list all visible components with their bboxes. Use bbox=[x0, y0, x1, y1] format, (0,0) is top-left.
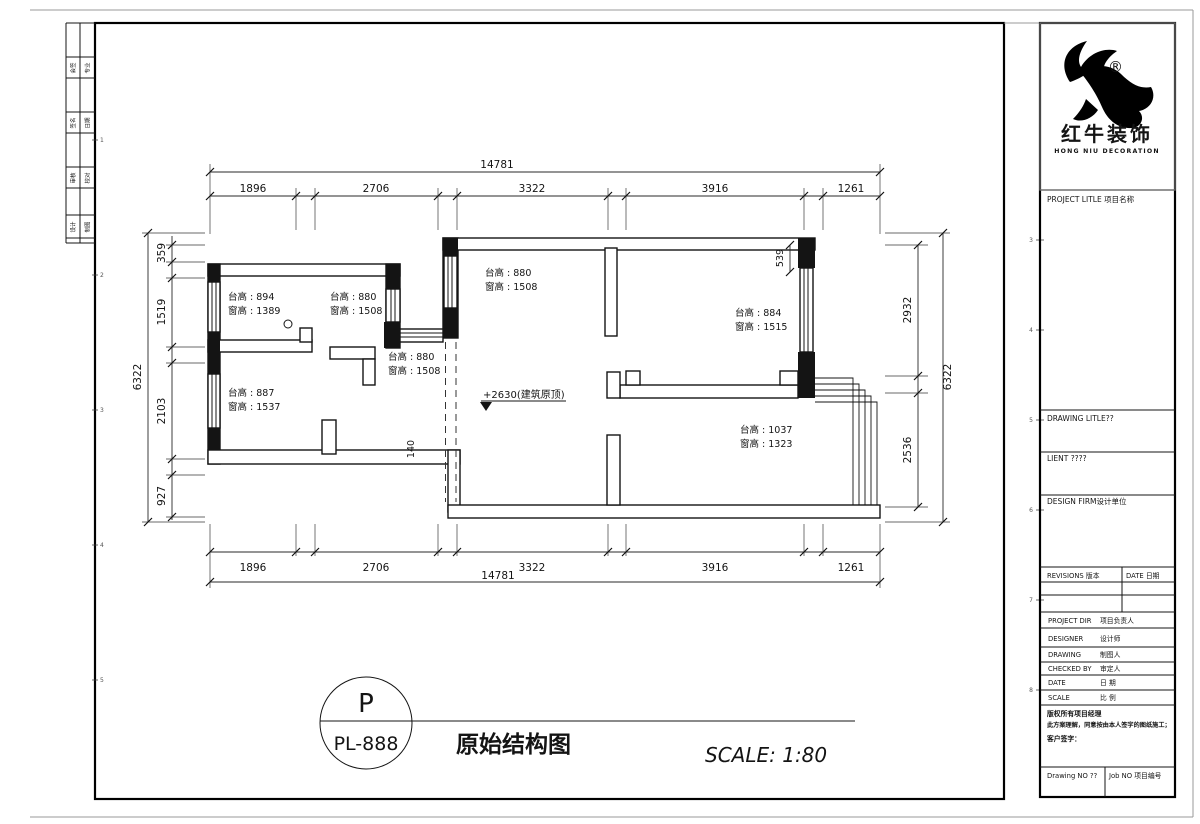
dimensions-right: 6322 2932 2536 bbox=[885, 229, 954, 526]
room-label: 台高 : 887 bbox=[228, 387, 274, 399]
dim-bottom-seg: 1896 bbox=[240, 562, 267, 574]
window bbox=[386, 289, 400, 322]
level-triangle-icon bbox=[480, 402, 492, 411]
title-emblem: P PL-888 原始结构图 SCALE: 1:80 bbox=[320, 677, 855, 769]
dim-bottom-seg: 1261 bbox=[838, 562, 865, 574]
room-label: 窗高 : 1537 bbox=[228, 401, 280, 413]
dim-140: 140 bbox=[406, 440, 417, 458]
strip-label: 日期 bbox=[85, 117, 92, 129]
level-text: +2630(建筑原顶) bbox=[483, 388, 565, 401]
room-label: 窗高 : 1508 bbox=[485, 281, 537, 293]
row-label: DRAWING bbox=[1048, 651, 1081, 659]
emblem-code: PL-888 bbox=[334, 733, 399, 755]
room-label: 台高 : 884 bbox=[735, 307, 781, 319]
row-value: 制图人 bbox=[1100, 650, 1121, 659]
dim-top-seg: 3916 bbox=[702, 183, 729, 195]
floor-plan-walls bbox=[208, 238, 880, 518]
room-label: 台高 : 880 bbox=[388, 351, 434, 363]
window bbox=[400, 329, 443, 342]
sheet-frame bbox=[30, 10, 1193, 817]
level-mark: +2630(建筑原顶) bbox=[480, 388, 566, 411]
drawing-title-label: DRAWING LITLE?? bbox=[1047, 414, 1114, 423]
window bbox=[444, 256, 457, 308]
strip-label: 设计 bbox=[69, 221, 77, 233]
brand-name-cn: 红牛装饰 bbox=[1061, 122, 1153, 146]
strip-grid bbox=[66, 23, 95, 243]
room-label: 台高 : 894 bbox=[228, 291, 274, 303]
room-label: 台高 : 880 bbox=[485, 267, 531, 279]
dim-bottom-seg: 2706 bbox=[363, 562, 390, 574]
strip-label: 校对 bbox=[84, 172, 92, 184]
window bbox=[208, 374, 220, 428]
dim-left-total: 6322 bbox=[132, 364, 144, 391]
dim-top-seg: 1896 bbox=[240, 183, 267, 195]
room-label: 窗高 : 1508 bbox=[388, 365, 440, 377]
scale-text: SCALE: 1:80 bbox=[705, 743, 827, 767]
dim-bottom-total: 14781 bbox=[481, 570, 514, 582]
mini-dimensions: 539 140 bbox=[406, 241, 794, 458]
project-title-label: PROJECT LITLE 项目名称 bbox=[1047, 194, 1135, 204]
drawing-name: 原始结构图 bbox=[456, 731, 571, 758]
row-value: 设计师 bbox=[1100, 634, 1121, 643]
row-label: DESIGNER bbox=[1048, 635, 1083, 643]
grid-number: 3 bbox=[100, 407, 104, 414]
copyright-line2: 此方案理解，同意按由本人签字的图纸施工； bbox=[1047, 721, 1171, 729]
row-label: SCALE bbox=[1048, 694, 1070, 702]
row-label: PROJECT DIR bbox=[1048, 617, 1092, 625]
plan-circle-symbol bbox=[284, 320, 292, 328]
room-label: 台高 : 1037 bbox=[740, 424, 792, 436]
grid-number: 2 bbox=[100, 272, 104, 279]
grid-number: 3 bbox=[1029, 237, 1033, 244]
left-strip: 会签 专业 签名 日期 审核 校对 设计 制图 bbox=[66, 23, 95, 243]
dim-top-seg: 1261 bbox=[838, 183, 865, 195]
dimensions-top: 14781 1896 2706 3322 3916 1261 bbox=[206, 159, 884, 234]
row-value: 项目负责人 bbox=[1100, 616, 1134, 625]
dim-left-seg: 1519 bbox=[156, 299, 168, 326]
grid-marks: 1 2 3 4 5 3 4 5 6 7 8 bbox=[92, 137, 1044, 694]
grid-ticks bbox=[92, 140, 1044, 690]
room-label: 窗高 : 1389 bbox=[228, 305, 280, 317]
strip-label: 制图 bbox=[84, 221, 92, 233]
room-label: 台高 : 880 bbox=[330, 291, 376, 303]
design-firm-label: DESIGN FIRM设计单位 bbox=[1047, 496, 1127, 506]
title-block: ® 红牛装饰 HONG NIU DECORATION PROJECT LITLE… bbox=[1040, 23, 1175, 797]
grid-number: 4 bbox=[100, 542, 104, 549]
dim-right-seg: 2536 bbox=[902, 436, 914, 463]
dim-top-total: 14781 bbox=[480, 159, 513, 171]
strip-label: 签名 bbox=[69, 117, 77, 128]
copyright-line1: 版权所有项目经理 bbox=[1046, 709, 1102, 718]
registered-mark: ® bbox=[1108, 58, 1123, 76]
dimensions-bottom: 1896 2706 3322 3916 1261 14781 bbox=[206, 524, 884, 588]
dim-top-seg: 2706 bbox=[363, 183, 390, 195]
brand-name-en: HONG NIU DECORATION bbox=[1054, 148, 1160, 155]
grid-number: 6 bbox=[1029, 507, 1033, 514]
drawing-sheet: 会签 专业 签名 日期 审核 校对 设计 制图 1 2 3 4 5 3 4 5 … bbox=[0, 0, 1200, 824]
dim-left-seg: 359 bbox=[156, 243, 168, 263]
grid-number: 5 bbox=[100, 677, 104, 684]
strip-label: 审核 bbox=[69, 172, 77, 184]
dim-left-seg: 927 bbox=[156, 486, 168, 506]
drawing-no-label: Drawing NO ?? bbox=[1047, 772, 1098, 780]
dim-left-seg: 2103 bbox=[156, 398, 168, 425]
strip-label: 专业 bbox=[84, 62, 92, 74]
row-value: 审定人 bbox=[1100, 664, 1121, 673]
row-label: DATE bbox=[1048, 679, 1066, 687]
grid-number: 7 bbox=[1029, 597, 1033, 604]
bull-logo-icon bbox=[1073, 99, 1098, 121]
window bbox=[800, 268, 813, 352]
revisions-header: REVISIONS 版本 bbox=[1047, 571, 1100, 580]
dim-right-seg: 2932 bbox=[902, 297, 914, 324]
dim-bottom-seg: 3322 bbox=[519, 562, 546, 574]
outer-margin-line bbox=[30, 10, 1193, 817]
room-label: 窗高 : 1508 bbox=[330, 305, 382, 317]
room-labels: 台高 : 894 窗高 : 1389 台高 : 880 窗高 : 1508 台高… bbox=[228, 267, 792, 450]
row-label: CHECKED BY bbox=[1048, 665, 1092, 673]
grid-number: 4 bbox=[1029, 327, 1033, 334]
dim-bottom-seg: 3916 bbox=[702, 562, 729, 574]
room-label: 窗高 : 1515 bbox=[735, 321, 787, 333]
job-no-label: Job NO 项目编号 bbox=[1108, 771, 1162, 780]
row-value: 比 例 bbox=[1100, 693, 1116, 702]
room-label: 窗高 : 1323 bbox=[740, 438, 792, 450]
grid-number: 8 bbox=[1029, 687, 1033, 694]
dim-right-total: 6322 bbox=[942, 364, 954, 391]
dimensions-left: 6322 359 1519 2103 927 bbox=[132, 229, 205, 526]
brand-logo: ® 红牛装饰 HONG NIU DECORATION bbox=[1054, 41, 1160, 155]
dim-539: 539 bbox=[775, 249, 786, 267]
date-header: DATE 日期 bbox=[1126, 572, 1160, 580]
dim-top-seg: 3322 bbox=[519, 183, 546, 195]
client-label: LIENT ???? bbox=[1047, 454, 1087, 463]
strip-label: 会签 bbox=[69, 62, 77, 74]
emblem-letter: P bbox=[358, 689, 374, 719]
row-value: 日 期 bbox=[1100, 679, 1116, 687]
grid-number: 1 bbox=[100, 137, 104, 144]
grid-number: 5 bbox=[1029, 417, 1033, 424]
customer-sign-label: 客户签字： bbox=[1046, 734, 1081, 743]
bay-window bbox=[815, 378, 877, 505]
window bbox=[208, 282, 220, 332]
